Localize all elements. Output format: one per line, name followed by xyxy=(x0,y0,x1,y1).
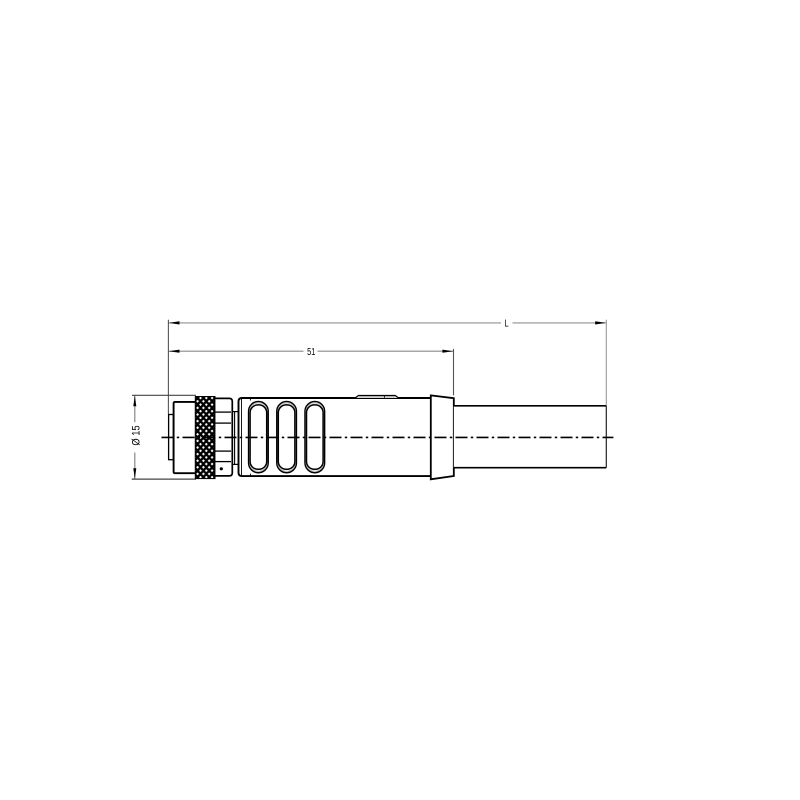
svg-text:Ø 15: Ø 15 xyxy=(131,425,143,446)
svg-text:51: 51 xyxy=(307,346,315,358)
svg-text:L: L xyxy=(505,317,509,329)
